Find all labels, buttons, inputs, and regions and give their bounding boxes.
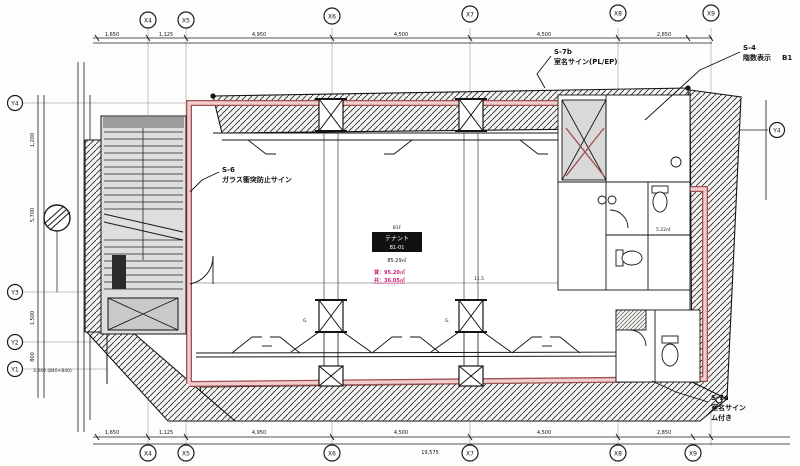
wc-area-text: 5.22㎡ bbox=[656, 226, 671, 233]
svg-text:1,650: 1,650 bbox=[105, 32, 119, 38]
svg-text:B1: B1 bbox=[782, 54, 792, 62]
wall-bottom bbox=[200, 381, 727, 421]
svg-text:4,500: 4,500 bbox=[537, 430, 551, 436]
svg-text:Y4: Y4 bbox=[10, 101, 19, 108]
svg-text:X9: X9 bbox=[689, 451, 697, 458]
utility-block-topright bbox=[558, 95, 690, 290]
column-top-2 bbox=[455, 99, 487, 131]
svg-text:1,500: 1,500 bbox=[30, 311, 36, 325]
svg-text:X6: X6 bbox=[328, 14, 336, 21]
svg-text:S-7b: S-7b bbox=[554, 48, 572, 56]
column-top-1 bbox=[315, 99, 347, 131]
grid-bubbles-top bbox=[140, 5, 719, 28]
svg-text:1,650: 1,650 bbox=[105, 430, 119, 436]
room-tag-header: B1F bbox=[393, 225, 402, 231]
annotation-s7b: S-7b 室名サイン(PL/EP) bbox=[537, 48, 617, 88]
svg-text:X8: X8 bbox=[614, 11, 622, 18]
room-area-text: 85.29㎡ bbox=[387, 257, 406, 264]
corner-note-text: 3,040 (840+840) bbox=[33, 368, 72, 374]
svg-text:800: 800 bbox=[30, 352, 36, 362]
svg-text:B1-01: B1-01 bbox=[390, 245, 405, 251]
room-rent-area-text: 貸：95.20㎡ bbox=[373, 269, 405, 276]
grid-bubble-labels-top: X4 X5 X6 X7 X8 X9 bbox=[144, 11, 715, 25]
stairwell bbox=[101, 116, 186, 334]
grid-bubble-labels-left: Y4 Y3 Y2 Y1 bbox=[10, 101, 19, 374]
svg-text:X5: X5 bbox=[182, 18, 190, 25]
room-common-area-text: 共：36.05㎡ bbox=[374, 277, 405, 284]
svg-text:4,500: 4,500 bbox=[394, 430, 408, 436]
svg-text:ム付き: ム付き bbox=[711, 413, 732, 422]
svg-text:X5: X5 bbox=[182, 451, 190, 458]
svg-text:室名サイン(PL/EP): 室名サイン(PL/EP) bbox=[554, 57, 617, 66]
mid-dim-text: 11.5 bbox=[474, 276, 484, 282]
svg-text:テナント: テナント bbox=[385, 236, 409, 243]
grid-bubble-right: Y4 bbox=[770, 123, 785, 138]
leader-s7b bbox=[537, 56, 551, 88]
column-mark-label: G bbox=[303, 318, 307, 324]
svg-text:X4: X4 bbox=[144, 18, 152, 25]
svg-text:2,850: 2,850 bbox=[657, 32, 671, 38]
svg-text:5,700: 5,700 bbox=[30, 208, 36, 222]
detail-callout-circle bbox=[44, 205, 70, 292]
svg-text:室名サイン: 室名サイン bbox=[711, 403, 746, 412]
plan-canvas: 1,650 1,125 4,950 4,500 4,500 2,850 1,65… bbox=[0, 0, 800, 466]
svg-text:S-4: S-4 bbox=[743, 44, 756, 52]
svg-text:X7: X7 bbox=[466, 12, 474, 19]
dimension-text-left: 1,200 5,700 1,500 800 bbox=[30, 133, 36, 362]
svg-text:X7: X7 bbox=[466, 451, 474, 458]
svg-text:2,850: 2,850 bbox=[657, 430, 671, 436]
svg-text:1,125: 1,125 bbox=[159, 32, 173, 38]
dimension-rail-right bbox=[740, 100, 768, 200]
svg-text:Y1: Y1 bbox=[10, 367, 19, 374]
toilet-block-bottomright bbox=[616, 310, 700, 382]
svg-text:S-6: S-6 bbox=[222, 166, 235, 174]
svg-text:階数表示: 階数表示 bbox=[743, 53, 771, 62]
svg-text:Y2: Y2 bbox=[10, 340, 19, 347]
svg-text:4,500: 4,500 bbox=[537, 32, 551, 38]
column-mark-label: G bbox=[445, 318, 449, 324]
svg-text:4,950: 4,950 bbox=[252, 32, 266, 38]
svg-text:19,575: 19,575 bbox=[421, 450, 439, 456]
svg-text:Y3: Y3 bbox=[10, 290, 19, 297]
grid-bubbles-left bbox=[8, 96, 23, 377]
svg-text:X4: X4 bbox=[144, 451, 152, 458]
svg-text:ガラス衝突防止サイン: ガラス衝突防止サイン bbox=[222, 175, 292, 184]
svg-text:1,200: 1,200 bbox=[30, 133, 36, 147]
svg-text:X6: X6 bbox=[328, 451, 336, 458]
svg-text:4,950: 4,950 bbox=[252, 430, 266, 436]
dimension-rail-bottom bbox=[93, 434, 790, 444]
floor-plan-sheet: 1,650 1,125 4,950 4,500 4,500 2,850 1,65… bbox=[0, 0, 800, 466]
svg-text:X9: X9 bbox=[707, 11, 715, 18]
dimension-rail-left bbox=[38, 62, 90, 432]
toilet-fixture-3 bbox=[662, 336, 678, 366]
toilet-fixture-1 bbox=[652, 186, 668, 212]
svg-text:Y4: Y4 bbox=[772, 128, 781, 135]
toilet-fixture-2 bbox=[616, 250, 642, 266]
svg-text:S-7a: S-7a bbox=[711, 394, 729, 402]
svg-text:1,125: 1,125 bbox=[159, 430, 173, 436]
svg-text:X8: X8 bbox=[614, 451, 622, 458]
dimension-text-top: 1,650 1,125 4,950 4,500 4,500 2,850 bbox=[105, 32, 671, 38]
svg-text:4,500: 4,500 bbox=[394, 32, 408, 38]
